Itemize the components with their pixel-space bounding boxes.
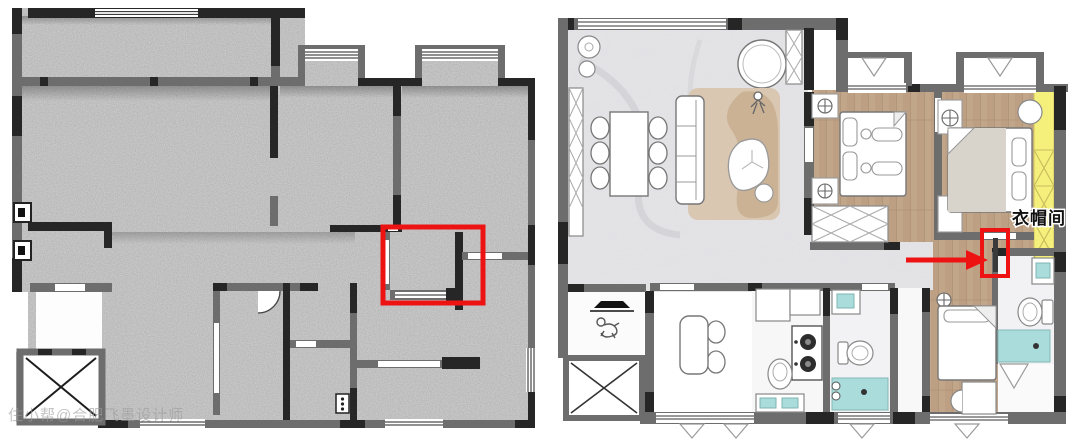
sofa <box>676 96 704 204</box>
bed <box>948 128 1032 212</box>
meter-box-icon <box>14 241 31 260</box>
living-window <box>578 19 726 29</box>
triangle-valance-icon <box>680 424 704 438</box>
toilet-icon <box>838 341 873 365</box>
triangle-valance-icon <box>988 58 1012 76</box>
right-floor-plan: 衣帽间 <box>558 18 1068 438</box>
dining-table <box>591 112 667 196</box>
round-table <box>738 40 786 88</box>
floor-plan-comparison: 住小帮@合肥飞墨设计师 <box>0 0 1080 440</box>
shower-area <box>998 330 1050 362</box>
double-bed <box>840 112 906 196</box>
side-table <box>1018 100 1042 124</box>
right-side-window <box>526 348 535 392</box>
toilet-icon <box>768 359 792 389</box>
shoe-cabinet <box>569 88 583 236</box>
hall-table <box>680 316 725 374</box>
stove-icon <box>792 326 822 380</box>
bottom-window-living <box>656 413 754 423</box>
service-pocket <box>898 288 924 418</box>
switch-box-icon <box>336 394 349 413</box>
left-floor-plan: 住小帮@合肥飞墨设计师 <box>0 0 545 440</box>
closet-label: 衣帽间 <box>1012 208 1066 228</box>
sink <box>1032 258 1054 284</box>
balcony-window <box>95 9 198 17</box>
tv-cabinet <box>786 30 802 84</box>
circle-cross-icon <box>937 293 951 307</box>
shower-area <box>832 378 888 410</box>
bottom-window-2 <box>385 419 443 428</box>
bedroom-window-bay-2 <box>956 52 1044 93</box>
circle-cross-icon <box>942 110 958 126</box>
triangle-valance-icon <box>850 424 874 438</box>
double-sink-vanity <box>756 394 804 412</box>
watermark-text: 住小帮@合肥飞墨设计师 <box>8 407 184 424</box>
meter-box-icon <box>14 203 31 222</box>
sink <box>832 290 860 314</box>
entry-lobby-floor <box>36 288 102 354</box>
triangle-valance-icon <box>862 58 886 76</box>
triangle-valance-icon <box>955 424 979 438</box>
wardrobe <box>812 206 888 242</box>
plans-canvas: 住小帮@合肥飞墨设计师 <box>0 0 1080 440</box>
single-bed <box>938 306 996 380</box>
elevator-x-icon <box>566 355 642 418</box>
triangle-valance-icon <box>724 424 748 438</box>
counter <box>790 289 820 315</box>
closet-door-leaf <box>993 238 998 272</box>
bedroom-window-bay-1 <box>840 52 912 93</box>
toilet-icon <box>1018 298 1053 326</box>
bottom-window-bath <box>838 413 890 423</box>
bottom-window-bedroom3 <box>930 414 1008 424</box>
fridge <box>756 289 790 321</box>
circle-cross-icon <box>818 99 832 113</box>
circle-cross-icon <box>818 184 832 198</box>
